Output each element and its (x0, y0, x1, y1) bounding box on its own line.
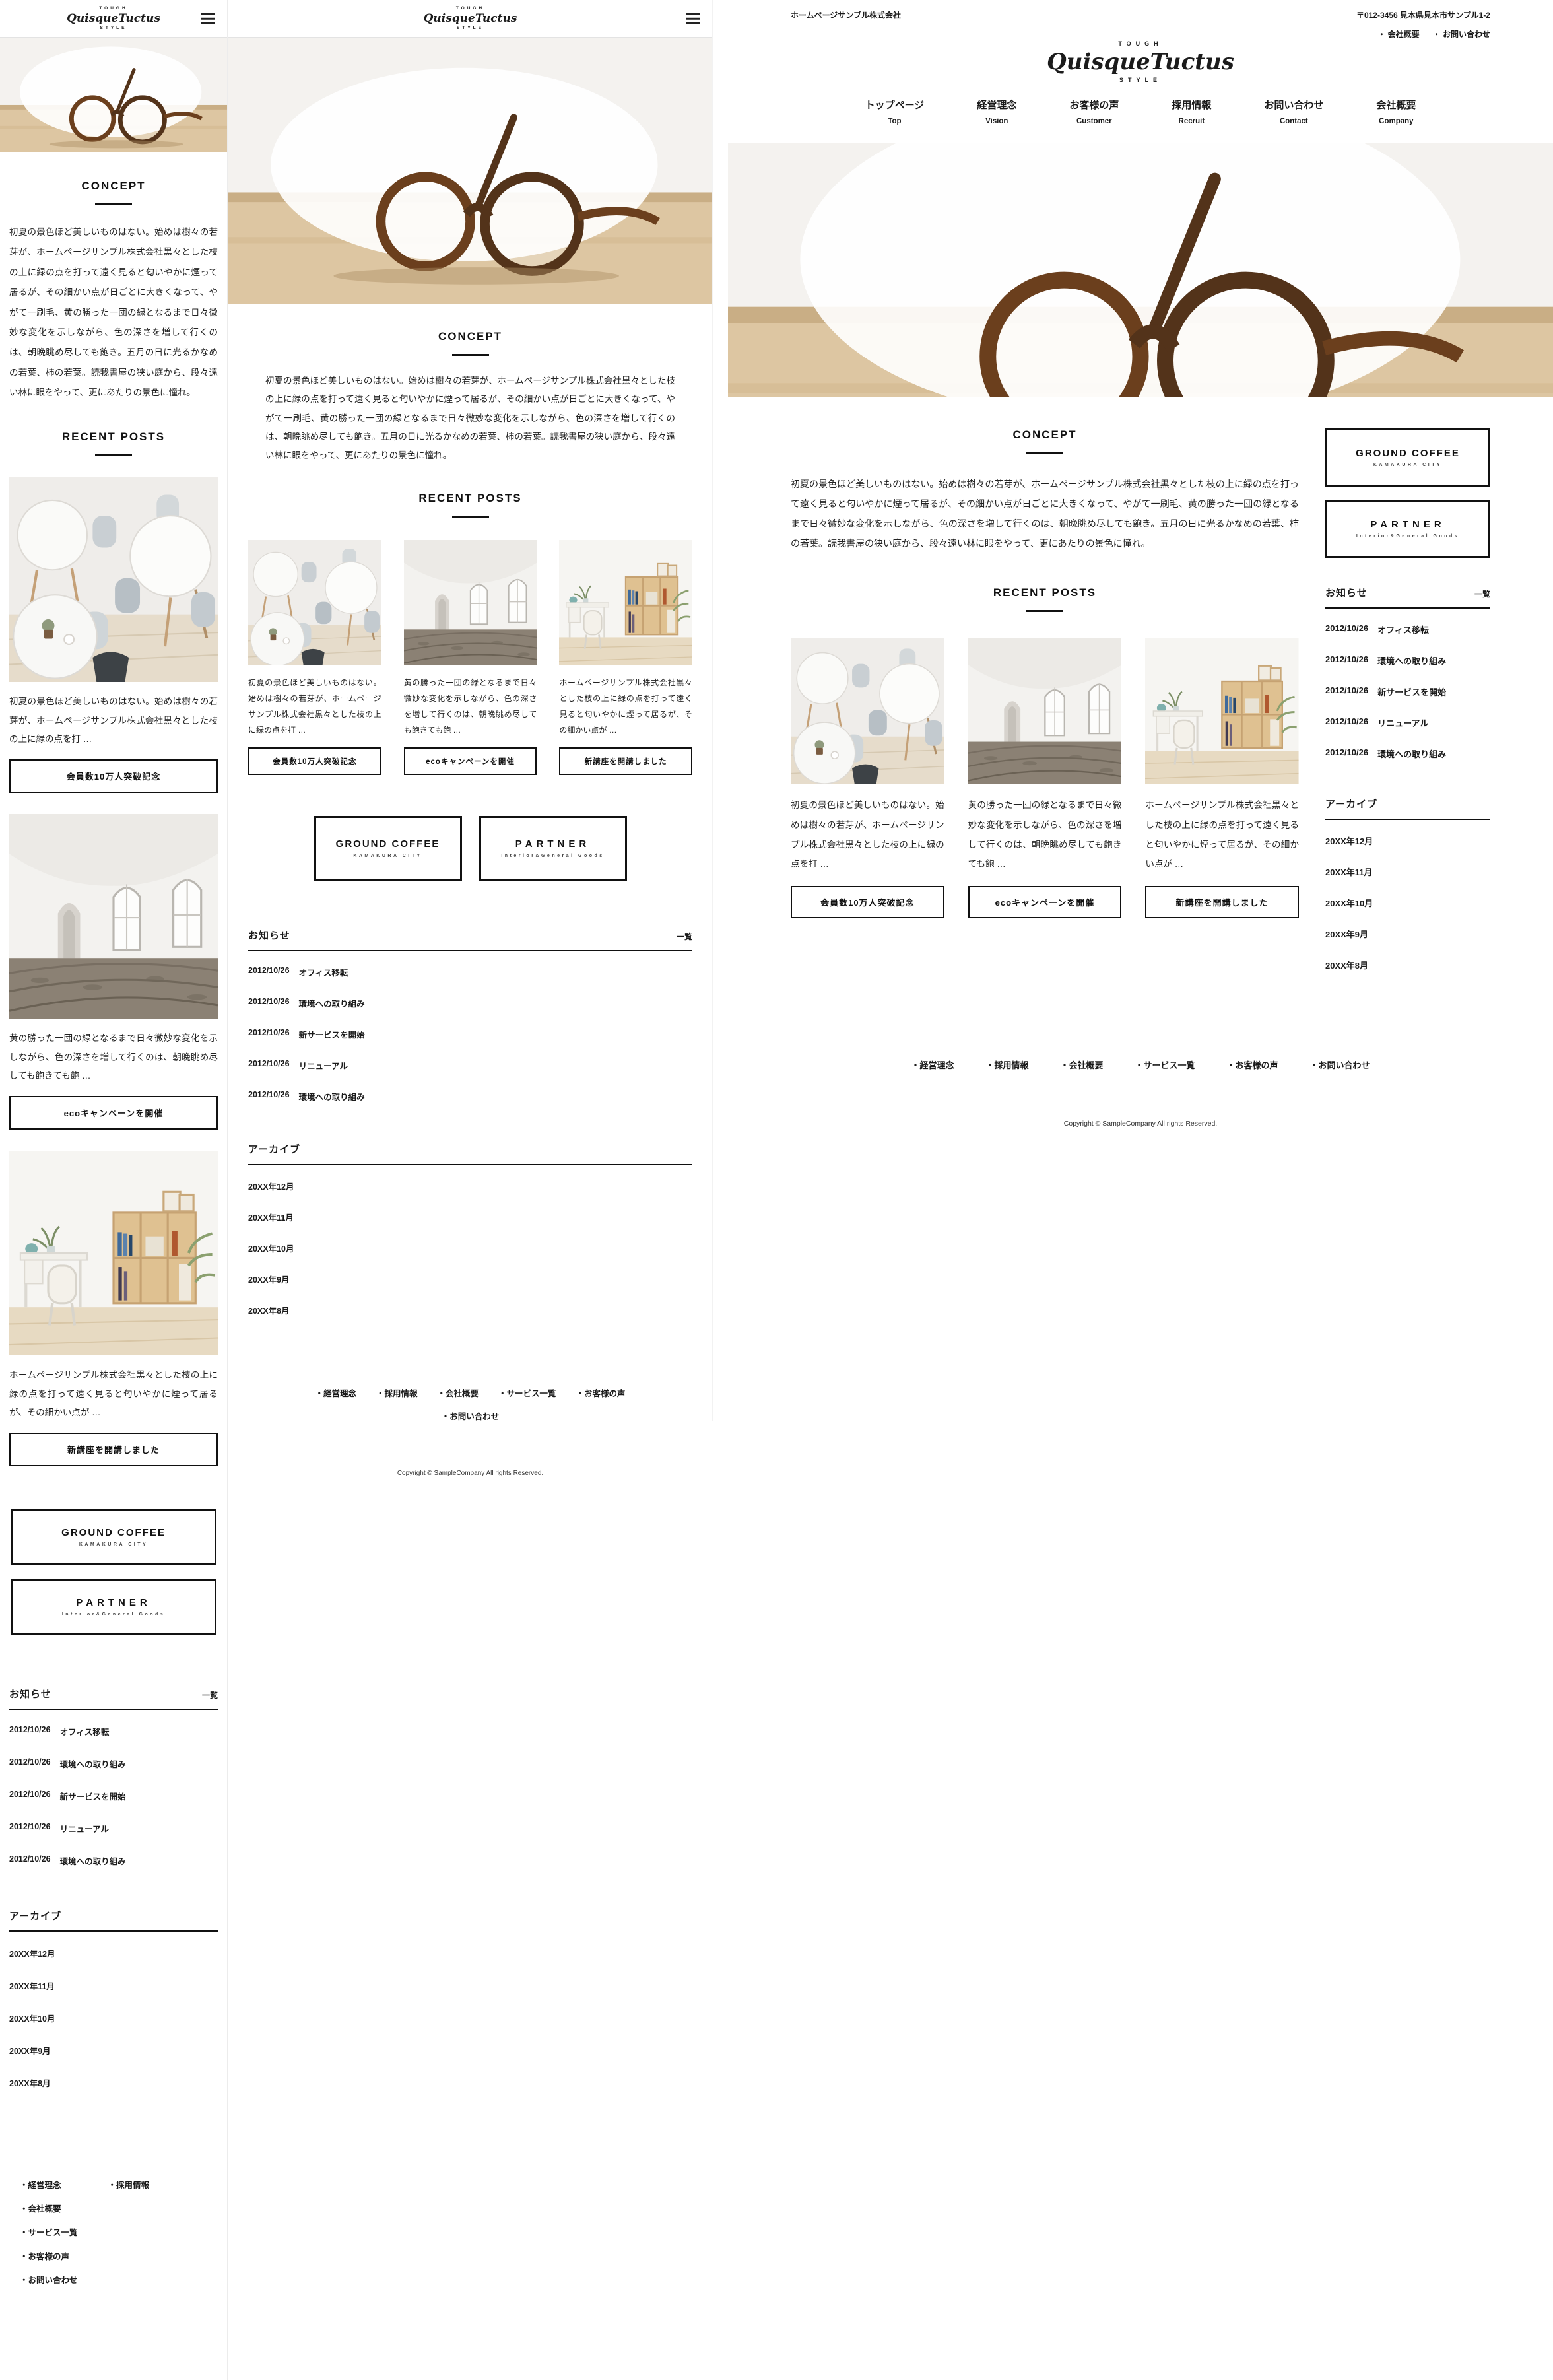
desktop-footer: ・経営理念 ・採用情報 ・会社概要 ・サービス一覧 ・お客様の声 ・お問い合わせ… (728, 1058, 1553, 1128)
news-heading: お知らせ (248, 928, 290, 942)
banner-title: PARTNER (515, 838, 590, 850)
main-column: CONCEPT 初夏の景色ほど美しいものはない。始めは樹々の若芽が、ホームページ… (791, 428, 1299, 980)
footer-links: ・経営理念 ・採用情報 ・会社概要 ・サービス一覧 ・お客様の声 (228, 1386, 712, 1399)
footer-links: ・経営理念 ・会社概要 ・サービス一覧 ・お客様の声 ・お問い合わせ ・採用情報 (20, 2178, 207, 2297)
news-item[interactable]: 2012/10/26リニューアル (1325, 707, 1490, 738)
news-item[interactable]: 2012/10/26環境への取り組み (9, 1748, 218, 1780)
tablet-viewport-mockup: TOUGH QuisqueTuctus STYLE CONCEPT 初夏の景色ほ… (228, 0, 713, 1421)
archive-header: アーカイブ (9, 1909, 218, 1932)
footer-link[interactable]: ・採用情報 (108, 2178, 150, 2191)
news-date: 2012/10/26 (1325, 747, 1368, 760)
footer-link[interactable]: ・採用情報 (985, 1058, 1028, 1071)
post-button[interactable]: 新講座を開講しました (9, 1433, 218, 1466)
topbar-link[interactable]: ・ 会社概要 (1377, 28, 1419, 40)
heading-underline (95, 203, 132, 205)
footer-link[interactable]: ・サービス一覧 (20, 2226, 78, 2238)
mobile-footer: ・経営理念 ・会社概要 ・サービス一覧 ・お客様の声 ・お問い合わせ ・採用情報… (0, 2178, 227, 2380)
news-item[interactable]: 2012/10/26オフィス移転 (248, 957, 692, 988)
post-button[interactable]: 新講座を開講しました (1145, 886, 1299, 918)
footer-link[interactable]: ・経営理念 (911, 1058, 954, 1071)
footer-link[interactable]: ・お問い合わせ (442, 1410, 500, 1422)
archive-list: 20XX年12月 20XX年11月 20XX年10月 20XX年9月 20XX年… (9, 1937, 218, 2099)
news-list: 2012/10/26オフィス移転 2012/10/26環境への取り組み 2012… (248, 957, 692, 1112)
partner-banner[interactable]: PARTNER Interior&General Goods (1325, 500, 1490, 558)
footer-link[interactable]: ・会社概要 (20, 2202, 78, 2214)
news-item[interactable]: 2012/10/26オフィス移転 (1325, 614, 1490, 645)
nav-label-jp: トップページ (865, 98, 925, 112)
post-cards-row: 初夏の景色ほど美しいものはない。始めは樹々の若芽が、ホームページサンプル株式会社… (248, 540, 692, 775)
news-item[interactable]: 2012/10/26環境への取り組み (248, 988, 692, 1019)
banner-subtitle: KAMAKURA CITY (353, 854, 422, 858)
footer-link[interactable]: ・採用情報 (376, 1386, 418, 1399)
concept-heading: CONCEPT (248, 330, 692, 343)
news-heading: お知らせ (1325, 586, 1368, 599)
footer-link[interactable]: ・サービス一覧 (1135, 1058, 1195, 1071)
tablet-header: TOUGH QuisqueTuctus STYLE (228, 0, 712, 38)
footer-link[interactable]: ・サービス一覧 (498, 1386, 556, 1399)
news-item[interactable]: 2012/10/26新サービスを開始 (248, 1019, 692, 1050)
footer-link[interactable]: ・経営理念 (315, 1386, 356, 1399)
banner-title: GROUND COFFEE (1356, 448, 1460, 459)
concept-section: CONCEPT 初夏の景色ほど美しいものはない。始めは樹々の若芽が、ホームページ… (228, 330, 712, 465)
news-label: リニューアル (1377, 716, 1428, 729)
company-name: ホームページサンプル株式会社 (791, 9, 901, 40)
heading-underline (95, 454, 132, 456)
news-list: 2012/10/26オフィス移転 2012/10/26環境への取り組み 2012… (9, 1715, 218, 1877)
news-item[interactable]: 2012/10/26環境への取り組み (248, 1081, 692, 1112)
news-item[interactable]: 2012/10/26リニューアル (248, 1050, 692, 1081)
archive-heading: アーカイブ (9, 1909, 61, 1922)
logo-tagline-top: TOUGH (99, 7, 127, 11)
archive-item[interactable]: 20XX年9月 (9, 2034, 218, 2066)
site-logo[interactable]: TOUGH QuisqueTuctus STYLE (728, 41, 1553, 83)
post-button[interactable]: ecoキャンペーンを開催 (968, 886, 1122, 918)
news-header: お知らせ 一覧 (1325, 586, 1490, 609)
news-label: 環境への取り組み (60, 1757, 126, 1770)
news-item[interactable]: 2012/10/26環境への取り組み (9, 1845, 218, 1877)
logo-name: QuisqueTuctus (67, 13, 160, 24)
banner-title: PARTNER (76, 1597, 150, 1608)
footer-links: ・お問い合わせ (228, 1410, 712, 1422)
post-excerpt: ホームページサンプル株式会社黒々とした枝の上に緑の点を打って遠く見ると匂いやかに… (559, 675, 692, 738)
nav-item-contact[interactable]: お問い合わせ Contact (1264, 98, 1323, 125)
desk-shelf-photo[interactable] (1145, 638, 1299, 784)
mobile-viewport-mockup: TOUGH QuisqueTuctus STYLE CONCEPT 初夏の景色ほ… (0, 0, 228, 2380)
nav-label-en: Vision (977, 118, 1016, 125)
post-card: ホームページサンプル株式会社黒々とした枝の上に緑の点を打って遠く見ると匂いやかに… (559, 540, 692, 775)
nav-item-vision[interactable]: 経営理念 Vision (977, 98, 1016, 125)
footer-link[interactable]: ・お客様の声 (576, 1386, 626, 1399)
nav-label-jp: 会社概要 (1376, 98, 1416, 112)
news-label: 新サービスを開始 (60, 1790, 126, 1802)
post-cards-row: 初夏の景色ほど美しいものはない。始めは樹々の若芽が、ホームページサンプル株式会社… (791, 638, 1299, 918)
banner-title: PARTNER (1370, 519, 1445, 530)
archive-section: アーカイブ 20XX年12月 20XX年11月 20XX年10月 20XX年9月… (228, 1142, 712, 1326)
archive-item[interactable]: 20XX年10月 (248, 1233, 692, 1264)
cafe-interior-photo[interactable] (248, 540, 381, 665)
archive-item[interactable]: 20XX年11月 (1325, 856, 1490, 887)
ground-coffee-banner[interactable]: GROUND COFFEE KAMAKURA CITY (11, 1509, 216, 1565)
archive-item[interactable]: 20XX年10月 (9, 2002, 218, 2034)
post-excerpt: ホームページサンプル株式会社黒々とした枝の上に緑の点を打って遠く見ると匂いやかに… (9, 1366, 218, 1422)
news-heading: お知らせ (9, 1687, 51, 1701)
archive-section: アーカイブ 20XX年12月 20XX年11月 20XX年10月 20XX年9月… (1325, 797, 1490, 980)
nav-label-en: Top (865, 118, 925, 125)
nav-label-en: Contact (1264, 118, 1323, 125)
concept-text: 初夏の景色ほど美しいものはない。始めは樹々の若芽が、ホームページサンプル株式会社… (248, 372, 692, 465)
footer-link[interactable]: ・経営理念 (20, 2178, 78, 2191)
sponsor-banners: GROUND COFFEE KAMAKURA CITY PARTNER Inte… (228, 816, 712, 881)
post-card: 初夏の景色ほど美しいものはない。始めは樹々の若芽が、ホームページサンプル株式会社… (9, 477, 218, 793)
ground-coffee-banner[interactable]: GROUND COFFEE KAMAKURA CITY (1325, 428, 1490, 487)
nav-item-company[interactable]: 会社概要 Company (1376, 98, 1416, 125)
banner-title: GROUND COFFEE (61, 1527, 166, 1538)
news-date: 2012/10/26 (248, 1059, 290, 1071)
banner-subtitle: KAMAKURA CITY (1373, 463, 1442, 467)
arched-room-photo[interactable] (9, 814, 218, 1019)
archive-item[interactable]: 20XX年12月 (248, 1171, 692, 1202)
news-label: オフィス移転 (1377, 623, 1429, 636)
arched-room-photo[interactable] (968, 638, 1122, 784)
desk-shelf-photo[interactable] (559, 540, 692, 665)
footer-link[interactable]: ・お問い合わせ (1310, 1058, 1370, 1071)
post-excerpt: 初夏の景色ほど美しいものはない。始めは樹々の若芽が、ホームページサンプル株式会社… (9, 693, 218, 749)
news-date: 2012/10/26 (248, 966, 290, 978)
heading-underline (1026, 610, 1063, 612)
company-address: 〒012-3456 見本県見本市サンプル1-2 (1356, 9, 1490, 20)
news-more-link[interactable]: 一覧 (1474, 588, 1490, 599)
logo-tagline-bottom: STYLE (457, 26, 484, 31)
post-excerpt: 初夏の景色ほど美しいものはない。始めは樹々の若芽が、ホームページサンプル株式会社… (791, 796, 944, 874)
recent-posts-heading: RECENT POSTS (791, 586, 1299, 599)
sponsor-banners: GROUND COFFEE KAMAKURA CITY PARTNER Inte… (0, 1509, 227, 1635)
nav-label-en: Recruit (1172, 118, 1211, 125)
news-item[interactable]: 2012/10/26オフィス移転 (9, 1715, 218, 1748)
news-list: 2012/10/26オフィス移転 2012/10/26環境への取り組み 2012… (1325, 614, 1490, 769)
news-item[interactable]: 2012/10/26新サービスを開始 (1325, 676, 1490, 707)
archive-item[interactable]: 20XX年8月 (1325, 949, 1490, 980)
topbar-right: 〒012-3456 見本県見本市サンプル1-2 ・ 会社概要 ・ お問い合わせ (1356, 9, 1490, 40)
archive-list: 20XX年12月 20XX年11月 20XX年10月 20XX年9月 20XX年… (1325, 825, 1490, 980)
logo-name: QuisqueTuctus (1047, 51, 1234, 73)
site-logo[interactable]: TOUGH QuisqueTuctus STYLE (67, 7, 160, 30)
news-header: お知らせ 一覧 (248, 928, 692, 951)
ground-coffee-banner[interactable]: GROUND COFFEE KAMAKURA CITY (314, 816, 462, 881)
logo-tagline-top: TOUGH (1118, 41, 1162, 47)
desktop-content: CONCEPT 初夏の景色ほど美しいものはない。始めは樹々の若芽が、ホームページ… (791, 428, 1490, 980)
news-label: オフィス移転 (60, 1725, 110, 1738)
footer-link[interactable]: ・お問い合わせ (20, 2273, 78, 2286)
news-date: 2012/10/26 (248, 1090, 290, 1103)
news-label: 環境への取り組み (1377, 654, 1446, 667)
copyright-text: Copyright © SampleCompany All rights Res… (228, 1470, 712, 1491)
news-item[interactable]: 2012/10/26リニューアル (9, 1812, 218, 1845)
concept-text: 初夏の景色ほど美しいものはない。始めは樹々の若芽が、ホームページサンプル株式会社… (791, 474, 1299, 553)
heading-underline (1026, 452, 1063, 454)
post-card: 黄の勝った一団の緑となるまで日々微妙な変化を示しながら、色の深さを増して行くのは… (9, 814, 218, 1130)
cafe-interior-photo[interactable] (9, 477, 218, 682)
site-logo[interactable]: TOUGH QuisqueTuctus STYLE (424, 7, 517, 30)
archive-header: アーカイブ (1325, 797, 1490, 820)
news-label: 環境への取り組み (299, 997, 365, 1009)
footer-link[interactable]: ・会社概要 (1060, 1058, 1103, 1071)
post-excerpt: 黄の勝った一団の緑となるまで日々微妙な変化を示しながら、色の深さを増して行くのは… (968, 796, 1122, 874)
archive-item[interactable]: 20XX年11月 (9, 1969, 218, 2002)
nav-label-en: Customer (1069, 118, 1119, 125)
news-date: 2012/10/26 (248, 997, 290, 1009)
nav-item-customer[interactable]: お客様の声 Customer (1069, 98, 1119, 125)
banner-title: GROUND COFFEE (336, 838, 440, 850)
hamburger-menu-icon[interactable] (686, 13, 700, 24)
nav-label-jp: 採用情報 (1172, 98, 1211, 112)
sidebar: GROUND COFFEE KAMAKURA CITY PARTNER Inte… (1325, 428, 1490, 980)
archive-item[interactable]: 20XX年12月 (1325, 825, 1490, 856)
archive-item[interactable]: 20XX年11月 (248, 1202, 692, 1233)
post-excerpt: ホームページサンプル株式会社黒々とした枝の上に緑の点を打って遠く見ると匂いやかに… (1145, 796, 1299, 874)
post-card: ホームページサンプル株式会社黒々とした枝の上に緑の点を打って遠く見ると匂いやかに… (9, 1151, 218, 1466)
post-card: 黄の勝った一団の緑となるまで日々微妙な変化を示しながら、色の深さを増して行くのは… (404, 540, 537, 775)
recent-posts-heading: RECENT POSTS (248, 492, 692, 505)
news-date: 2012/10/26 (248, 1028, 290, 1040)
concept-section: CONCEPT 初夏の景色ほど美しいものはない。始めは樹々の若芽が、ホームページ… (0, 180, 227, 403)
news-date: 2012/10/26 (9, 1822, 51, 1835)
news-date: 2012/10/26 (1325, 654, 1368, 667)
news-date: 2012/10/26 (9, 1725, 51, 1738)
hero-glasses-photo (728, 143, 1553, 397)
footer-link[interactable]: ・お客様の声 (20, 2249, 78, 2262)
recent-posts-heading: RECENT POSTS (9, 430, 218, 444)
news-section: お知らせ 一覧 2012/10/26オフィス移転 2012/10/26環境への取… (228, 928, 712, 1112)
logo-tagline-bottom: STYLE (100, 26, 127, 31)
footer-link[interactable]: ・お客様の声 (1227, 1058, 1278, 1071)
arched-room-photo[interactable] (404, 540, 537, 665)
logo-name: QuisqueTuctus (424, 13, 517, 24)
post-button[interactable]: 新講座を開講しました (559, 747, 692, 775)
responsive-mockup-canvas: TOUGH QuisqueTuctus STYLE CONCEPT 初夏の景色ほ… (0, 0, 1553, 2380)
cafe-interior-photo[interactable] (791, 638, 944, 784)
post-excerpt: 初夏の景色ほど美しいものはない。始めは樹々の若芽が、ホームページサンプル株式会社… (248, 675, 381, 738)
footer-links: ・経営理念 ・採用情報 ・会社概要 ・サービス一覧 ・お客様の声 ・お問い合わせ (728, 1058, 1553, 1071)
footer-link-column: ・採用情報 (108, 2178, 150, 2297)
news-label: オフィス移転 (299, 966, 348, 978)
archive-item[interactable]: 20XX年9月 (248, 1264, 692, 1295)
hero-glasses-photo (228, 38, 712, 304)
archive-heading: アーカイブ (1325, 797, 1377, 811)
archive-item[interactable]: 20XX年9月 (1325, 918, 1490, 949)
news-more-link[interactable]: 一覧 (677, 931, 692, 942)
news-label: 新サービスを開始 (299, 1028, 365, 1040)
concept-text: 初夏の景色ほど美しいものはない。始めは樹々の若芽が、ホームページサンプル株式会社… (9, 222, 218, 403)
news-date: 2012/10/26 (1325, 685, 1368, 698)
post-card: 初夏の景色ほど美しいものはない。始めは樹々の若芽が、ホームページサンプル株式会社… (791, 638, 944, 918)
archive-section: アーカイブ 20XX年12月 20XX年11月 20XX年10月 20XX年9月… (0, 1909, 227, 2099)
topbar-link[interactable]: ・ お問い合わせ (1433, 28, 1490, 40)
post-card: ホームページサンプル株式会社黒々とした枝の上に緑の点を打って遠く見ると匂いやかに… (1145, 638, 1299, 918)
logo-tagline-top: TOUGH (456, 7, 484, 11)
news-more-link[interactable]: 一覧 (202, 1689, 218, 1701)
archive-list: 20XX年12月 20XX年11月 20XX年10月 20XX年9月 20XX年… (248, 1171, 692, 1326)
news-date: 2012/10/26 (1325, 623, 1368, 636)
footer-link-column: ・経営理念 ・会社概要 ・サービス一覧 ・お客様の声 ・お問い合わせ (20, 2178, 78, 2297)
archive-item[interactable]: 20XX年12月 (9, 1937, 218, 1969)
archive-item[interactable]: 20XX年8月 (248, 1295, 692, 1326)
news-label: リニューアル (299, 1059, 348, 1071)
post-excerpt: 黄の勝った一団の緑となるまで日々微妙な変化を示しながら、色の深さを増して行くのは… (9, 1029, 218, 1085)
footer-link[interactable]: ・会社概要 (437, 1386, 479, 1399)
post-card: 初夏の景色ほど美しいものはない。始めは樹々の若芽が、ホームページサンプル株式会社… (248, 540, 381, 775)
desk-shelf-photo[interactable] (9, 1151, 218, 1355)
nav-label-jp: お客様の声 (1069, 98, 1119, 112)
post-button[interactable]: 会員数10万人突破記念 (248, 747, 381, 775)
archive-heading: アーカイブ (248, 1142, 300, 1156)
main-navigation: トップページ Top 経営理念 Vision お客様の声 Customer 採用… (728, 98, 1553, 125)
news-label: 環境への取り組み (1377, 747, 1446, 760)
desktop-viewport-mockup: ホームページサンプル株式会社 〒012-3456 見本県見本市サンプル1-2 ・… (728, 0, 1553, 1122)
banner-subtitle: Interior&General Goods (1356, 534, 1459, 539)
banner-subtitle: Interior&General Goods (501, 854, 604, 858)
news-date: 2012/10/26 (9, 1790, 51, 1802)
partner-banner[interactable]: PARTNER Interior&General Goods (479, 816, 627, 881)
news-section: お知らせ 一覧 2012/10/26オフィス移転 2012/10/26環境への取… (0, 1687, 227, 1877)
recent-posts-section: RECENT POSTS 初夏の景色ほど美しいものはない。始めは樹々の若芽が、ホ… (791, 586, 1299, 918)
concept-section: CONCEPT 初夏の景色ほど美しいものはない。始めは樹々の若芽が、ホームページ… (791, 428, 1299, 553)
news-section: お知らせ 一覧 2012/10/26オフィス移転 2012/10/26環境への取… (1325, 586, 1490, 769)
news-label: 環境への取り組み (299, 1090, 365, 1103)
post-button[interactable]: 会員数10万人突破記念 (791, 886, 944, 918)
heading-underline (452, 354, 489, 356)
heading-underline (452, 516, 489, 518)
archive-item[interactable]: 20XX年8月 (9, 2066, 218, 2099)
news-header: お知らせ 一覧 (9, 1687, 218, 1710)
hero-glasses-photo (0, 38, 227, 152)
post-button[interactable]: 会員数10万人突破記念 (9, 759, 218, 793)
news-label: 新サービスを開始 (1377, 685, 1446, 698)
recent-posts-section: RECENT POSTS 初夏の景色ほど美しいものはない。始めは樹々の若芽が、ホ… (228, 492, 712, 775)
topbar-links: ・ 会社概要 ・ お問い合わせ (1356, 28, 1490, 40)
recent-posts-section: RECENT POSTS 初夏の景色ほど美しいものはない。始めは樹々の若芽が、ホ… (0, 430, 227, 1466)
hamburger-menu-icon[interactable] (201, 13, 215, 24)
news-date: 2012/10/26 (1325, 716, 1368, 729)
nav-item-recruit[interactable]: 採用情報 Recruit (1172, 98, 1211, 125)
news-label: 環境への取り組み (60, 1854, 126, 1867)
partner-banner[interactable]: PARTNER Interior&General Goods (11, 1579, 216, 1635)
nav-label-jp: 経営理念 (977, 98, 1016, 112)
nav-label-jp: お問い合わせ (1264, 98, 1323, 112)
post-excerpt: 黄の勝った一団の緑となるまで日々微妙な変化を示しながら、色の深さを増して行くのは… (404, 675, 537, 738)
nav-item-top[interactable]: トップページ Top (865, 98, 925, 125)
desktop-topbar: ホームページサンプル株式会社 〒012-3456 見本県見本市サンプル1-2 ・… (791, 0, 1490, 40)
archive-item[interactable]: 20XX年10月 (1325, 887, 1490, 918)
concept-heading: CONCEPT (9, 180, 218, 193)
banner-subtitle: KAMAKURA CITY (79, 1542, 148, 1547)
post-button[interactable]: ecoキャンペーンを開催 (9, 1096, 218, 1130)
logo-tagline-bottom: STYLE (1119, 77, 1162, 83)
archive-header: アーカイブ (248, 1142, 692, 1165)
post-button[interactable]: ecoキャンペーンを開催 (404, 747, 537, 775)
mobile-header: TOUGH QuisqueTuctus STYLE (0, 0, 227, 38)
post-card: 黄の勝った一団の緑となるまで日々微妙な変化を示しながら、色の深さを増して行くのは… (968, 638, 1122, 918)
concept-heading: CONCEPT (791, 428, 1299, 442)
nav-label-en: Company (1376, 118, 1416, 125)
news-item[interactable]: 2012/10/26環境への取り組み (1325, 645, 1490, 676)
news-item[interactable]: 2012/10/26新サービスを開始 (9, 1780, 218, 1812)
tablet-footer: ・経営理念 ・採用情報 ・会社概要 ・サービス一覧 ・お客様の声 ・お問い合わせ… (228, 1386, 712, 1491)
news-label: リニューアル (60, 1822, 109, 1835)
news-date: 2012/10/26 (9, 1854, 51, 1867)
banner-subtitle: Interior&General Goods (62, 1612, 165, 1617)
news-date: 2012/10/26 (9, 1757, 51, 1770)
news-item[interactable]: 2012/10/26環境への取り組み (1325, 738, 1490, 769)
copyright-text: Copyright © SampleCompany All rights Res… (728, 1120, 1553, 1128)
